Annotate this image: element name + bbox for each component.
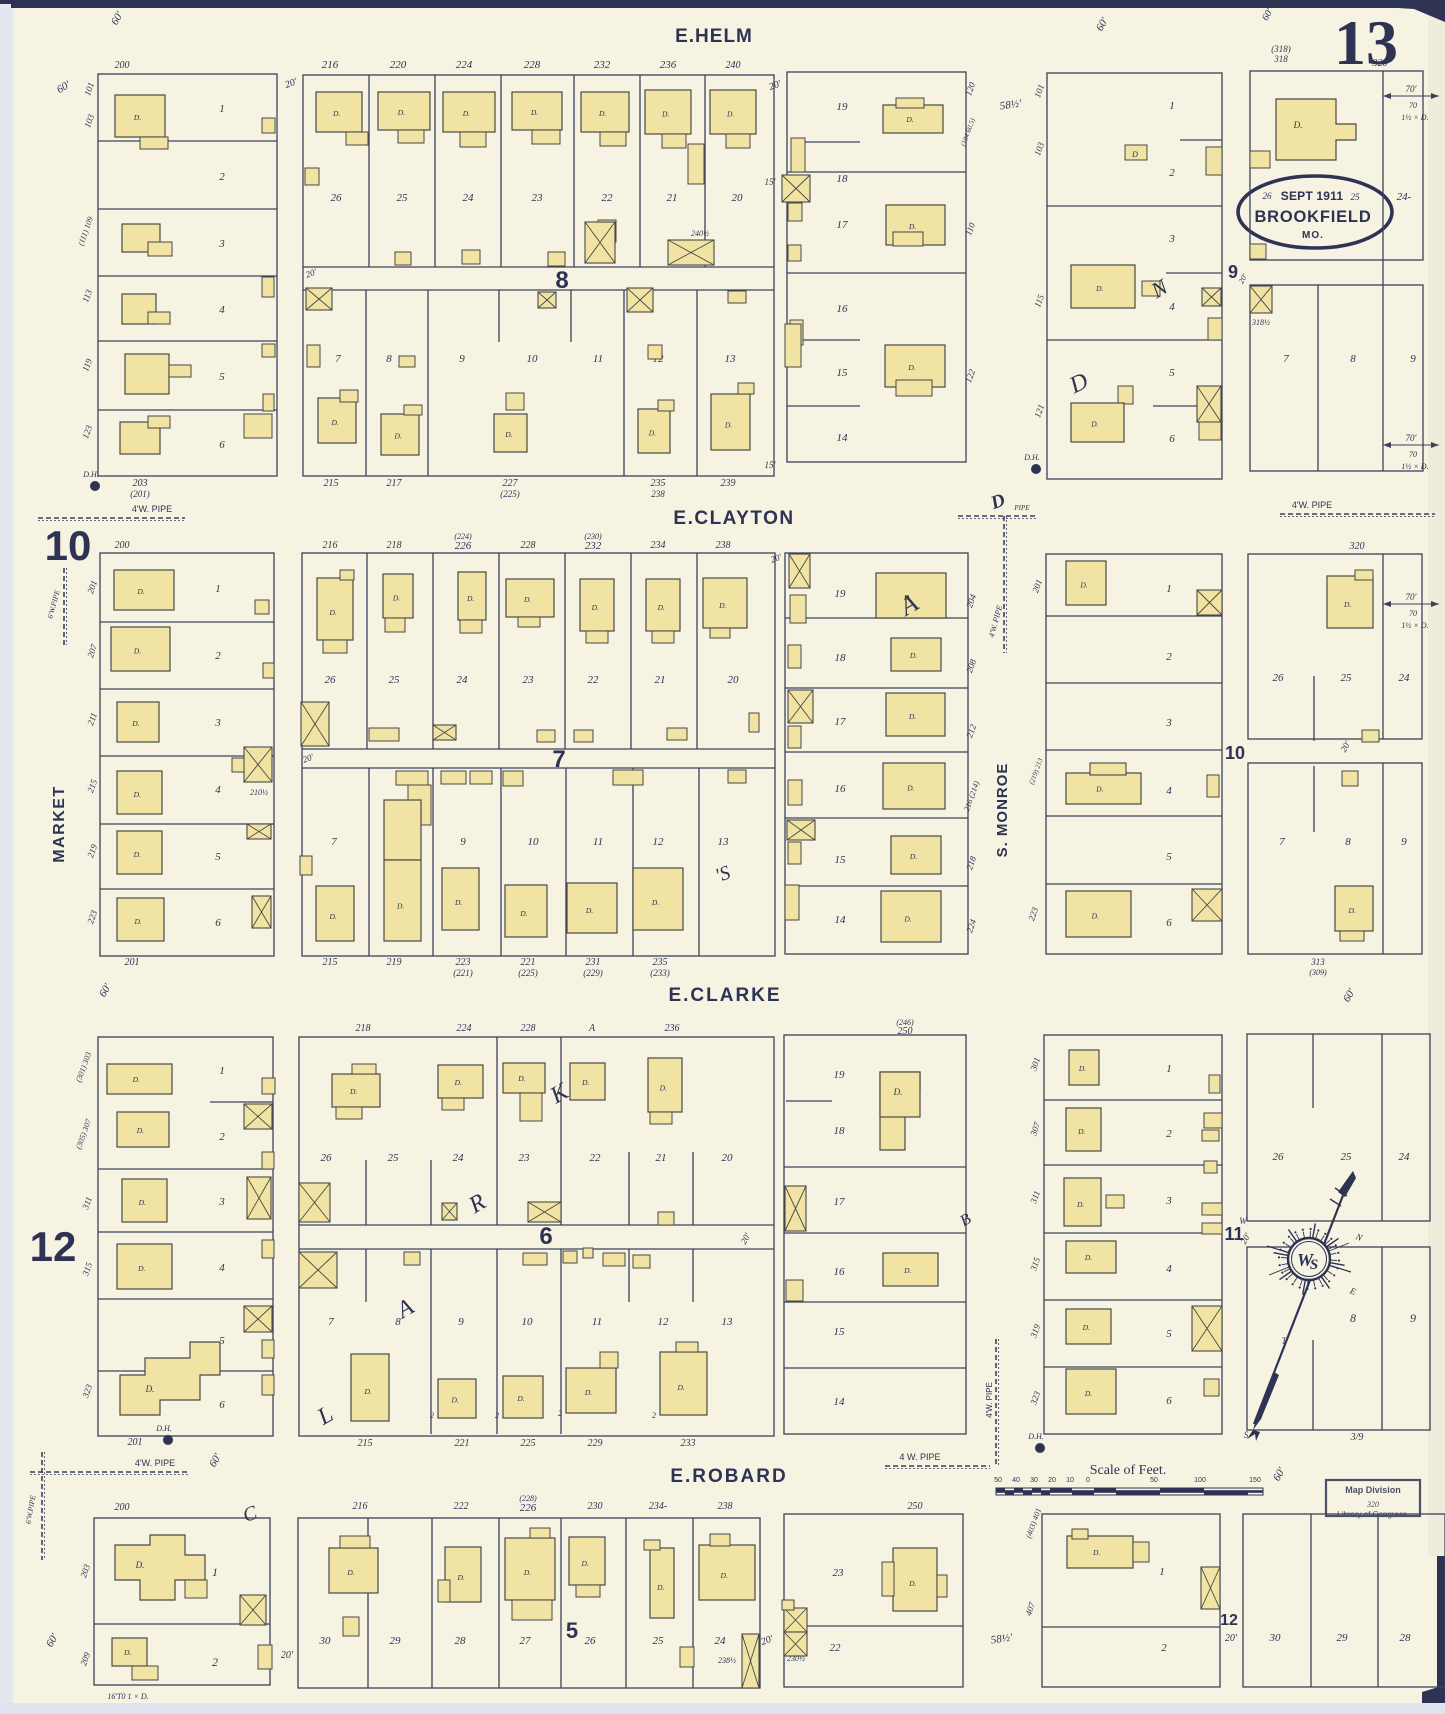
svg-text:5: 5 bbox=[1166, 851, 1172, 863]
svg-text:1: 1 bbox=[215, 583, 221, 595]
svg-text:(229): (229) bbox=[583, 968, 603, 978]
svg-text:7: 7 bbox=[335, 353, 341, 365]
svg-text:2: 2 bbox=[219, 1131, 225, 1143]
svg-text:D.: D. bbox=[530, 108, 538, 117]
svg-text:4: 4 bbox=[1166, 1263, 1172, 1275]
svg-text:23: 23 bbox=[532, 192, 544, 204]
svg-text:D.: D. bbox=[585, 906, 593, 915]
svg-text:2: 2 bbox=[215, 650, 221, 662]
svg-text:24-: 24- bbox=[1397, 191, 1412, 203]
svg-text:1: 1 bbox=[1169, 100, 1175, 112]
svg-text:17: 17 bbox=[835, 716, 847, 728]
svg-text:9: 9 bbox=[1401, 836, 1407, 848]
svg-text:30: 30 bbox=[1030, 1477, 1038, 1484]
svg-text:1½ × D.: 1½ × D. bbox=[1401, 621, 1428, 630]
svg-text:238: 238 bbox=[718, 1501, 733, 1512]
svg-text:9: 9 bbox=[460, 836, 466, 848]
svg-text:8: 8 bbox=[1350, 1311, 1356, 1325]
svg-text:20': 20' bbox=[281, 1650, 294, 1661]
svg-text:219: 219 bbox=[387, 957, 402, 968]
svg-text:17: 17 bbox=[834, 1196, 846, 1208]
svg-text:24: 24 bbox=[715, 1635, 727, 1647]
svg-text:13: 13 bbox=[1334, 7, 1398, 78]
svg-text:2: 2 bbox=[430, 1411, 434, 1420]
svg-text:10: 10 bbox=[45, 522, 92, 569]
svg-text:E.CLAYTON: E.CLAYTON bbox=[673, 508, 794, 529]
svg-text:25: 25 bbox=[1341, 672, 1353, 684]
svg-text:Scale of Feet.: Scale of Feet. bbox=[1090, 1463, 1167, 1478]
svg-text:D.: D. bbox=[523, 1568, 531, 1577]
svg-text:E.HELM: E.HELM bbox=[675, 26, 753, 47]
svg-text:20: 20 bbox=[728, 674, 740, 686]
svg-text:D.: D. bbox=[657, 603, 665, 612]
svg-text:(318): (318) bbox=[1271, 44, 1291, 54]
svg-text:25: 25 bbox=[388, 1152, 400, 1164]
svg-text:216: 216 bbox=[323, 540, 338, 551]
svg-text:(225): (225) bbox=[500, 489, 520, 499]
svg-text:320: 320 bbox=[1366, 1500, 1379, 1509]
svg-text:14: 14 bbox=[834, 1396, 846, 1408]
svg-text:8: 8 bbox=[555, 267, 568, 294]
svg-text:320: 320 bbox=[1349, 541, 1365, 552]
svg-text:70: 70 bbox=[1409, 101, 1417, 110]
svg-text:1: 1 bbox=[1166, 1063, 1172, 1075]
svg-text:25: 25 bbox=[1341, 1151, 1353, 1163]
svg-text:4: 4 bbox=[1166, 785, 1172, 797]
svg-text:216: 216 bbox=[322, 59, 339, 71]
svg-text:(225): (225) bbox=[518, 968, 538, 978]
svg-text:13: 13 bbox=[725, 353, 737, 365]
svg-text:14: 14 bbox=[835, 914, 847, 926]
svg-text:9: 9 bbox=[1410, 1311, 1416, 1325]
svg-text:5: 5 bbox=[1166, 1328, 1172, 1340]
svg-text:200: 200 bbox=[115, 1502, 130, 1513]
svg-text:70': 70' bbox=[1406, 84, 1418, 94]
svg-text:S: S bbox=[1244, 1430, 1249, 1440]
svg-text:(221): (221) bbox=[453, 968, 473, 978]
svg-text:D.: D. bbox=[396, 902, 404, 911]
svg-text:238½: 238½ bbox=[718, 1656, 736, 1665]
svg-text:234: 234 bbox=[651, 540, 666, 551]
svg-text:228: 228 bbox=[521, 540, 536, 551]
svg-text:6: 6 bbox=[215, 917, 221, 929]
svg-text:D.: D. bbox=[1084, 1389, 1092, 1398]
svg-text:2: 2 bbox=[652, 1411, 656, 1420]
svg-text:D.: D. bbox=[134, 917, 142, 926]
svg-text:25: 25 bbox=[653, 1635, 665, 1647]
svg-text:D.: D. bbox=[584, 1388, 592, 1397]
svg-text:D.: D. bbox=[136, 1126, 144, 1135]
svg-text:21: 21 bbox=[655, 674, 666, 686]
svg-text:15: 15 bbox=[835, 854, 847, 866]
svg-text:18: 18 bbox=[835, 652, 847, 664]
svg-text:235: 235 bbox=[653, 957, 668, 968]
svg-text:D.H.: D.H. bbox=[155, 1424, 172, 1433]
svg-text:D.: D. bbox=[450, 1395, 458, 1404]
svg-text:222: 222 bbox=[454, 1501, 469, 1512]
svg-text:40: 40 bbox=[1012, 1477, 1020, 1484]
svg-text:21: 21 bbox=[667, 192, 678, 204]
svg-text:29: 29 bbox=[390, 1635, 402, 1647]
svg-text:27: 27 bbox=[520, 1635, 532, 1647]
svg-text:15': 15' bbox=[765, 177, 777, 187]
svg-text:318½: 318½ bbox=[1251, 318, 1270, 327]
svg-text:E.ROBARD: E.ROBARD bbox=[670, 1466, 787, 1487]
svg-text:D.: D. bbox=[346, 1568, 354, 1577]
svg-text:D.: D. bbox=[349, 1087, 357, 1096]
svg-text:4 W. PIPE: 4 W. PIPE bbox=[899, 1452, 940, 1462]
svg-text:232: 232 bbox=[585, 540, 602, 552]
svg-text:17: 17 bbox=[837, 219, 849, 231]
svg-text:70': 70' bbox=[1406, 592, 1418, 602]
svg-text:26: 26 bbox=[331, 192, 343, 204]
svg-text:8: 8 bbox=[386, 353, 392, 365]
svg-text:D.: D. bbox=[1347, 906, 1355, 915]
svg-text:23: 23 bbox=[833, 1567, 845, 1579]
svg-text:D.: D. bbox=[133, 113, 141, 122]
svg-text:D.: D. bbox=[906, 784, 914, 793]
svg-text:20: 20 bbox=[722, 1152, 734, 1164]
svg-text:20: 20 bbox=[732, 192, 744, 204]
svg-text:D.: D. bbox=[661, 109, 669, 118]
svg-text:201: 201 bbox=[128, 1437, 143, 1448]
svg-text:D.: D. bbox=[908, 1579, 916, 1588]
svg-text:12: 12 bbox=[30, 1223, 77, 1270]
svg-text:11: 11 bbox=[593, 836, 603, 848]
svg-text:12: 12 bbox=[653, 836, 665, 848]
svg-text:26: 26 bbox=[1273, 1151, 1285, 1163]
svg-text:7: 7 bbox=[331, 836, 337, 848]
svg-text:D.: D. bbox=[581, 1078, 589, 1087]
svg-text:22: 22 bbox=[830, 1642, 842, 1654]
svg-text:D.: D. bbox=[145, 1384, 155, 1394]
svg-text:22: 22 bbox=[602, 192, 614, 204]
svg-text:D.: D. bbox=[466, 594, 474, 603]
svg-text:3: 3 bbox=[1165, 1195, 1172, 1207]
svg-text:D.: D. bbox=[457, 1573, 465, 1582]
svg-text:S. MONROE: S. MONROE bbox=[994, 763, 1011, 858]
svg-text:D.: D. bbox=[138, 1198, 146, 1207]
svg-text:20': 20' bbox=[1225, 1633, 1238, 1644]
svg-text:D.: D. bbox=[136, 587, 144, 596]
svg-text:6: 6 bbox=[1166, 1395, 1172, 1407]
svg-text:14: 14 bbox=[837, 432, 849, 444]
svg-text:D.: D. bbox=[893, 1087, 903, 1097]
svg-text:D.: D. bbox=[1091, 912, 1099, 921]
svg-text:D.: D. bbox=[591, 603, 599, 612]
svg-text:3: 3 bbox=[218, 238, 225, 250]
svg-text:D.: D. bbox=[131, 719, 139, 728]
svg-text:224: 224 bbox=[456, 59, 473, 71]
svg-text:9: 9 bbox=[458, 1316, 464, 1328]
svg-text:15: 15 bbox=[837, 367, 849, 379]
svg-text:S: S bbox=[1310, 1257, 1318, 1273]
svg-text:D.: D. bbox=[908, 222, 916, 231]
svg-text:D.: D. bbox=[397, 108, 405, 117]
svg-text:D.: D. bbox=[393, 432, 401, 441]
svg-text:3: 3 bbox=[218, 1196, 225, 1208]
svg-text:218: 218 bbox=[387, 540, 402, 551]
svg-text:D.: D. bbox=[903, 915, 911, 924]
svg-text:D.: D. bbox=[905, 115, 913, 124]
svg-text:6: 6 bbox=[219, 439, 225, 451]
svg-text:24: 24 bbox=[1399, 672, 1411, 684]
svg-text:236: 236 bbox=[665, 1023, 680, 1034]
svg-text:5: 5 bbox=[566, 1618, 578, 1643]
svg-text:10: 10 bbox=[522, 1316, 534, 1328]
svg-text:26: 26 bbox=[325, 674, 337, 686]
svg-text:2: 2 bbox=[1166, 651, 1172, 663]
svg-text:50: 50 bbox=[1150, 1477, 1158, 1484]
svg-text:A: A bbox=[588, 1023, 596, 1034]
svg-text:226: 226 bbox=[455, 540, 472, 552]
svg-text:230: 230 bbox=[588, 1501, 603, 1512]
svg-text:318: 318 bbox=[1273, 54, 1288, 64]
svg-text:D.H.: D.H. bbox=[1023, 453, 1040, 462]
svg-text:D.: D. bbox=[454, 1078, 462, 1087]
svg-text:26: 26 bbox=[1263, 191, 1273, 201]
svg-text:229: 229 bbox=[588, 1438, 603, 1449]
svg-text:0: 0 bbox=[1086, 1477, 1090, 1484]
svg-text:225: 225 bbox=[521, 1438, 536, 1449]
svg-text:24: 24 bbox=[463, 192, 475, 204]
svg-text:25: 25 bbox=[1351, 192, 1361, 202]
svg-text:215: 215 bbox=[358, 1438, 373, 1449]
svg-text:28: 28 bbox=[455, 1635, 467, 1647]
svg-text:3: 3 bbox=[214, 717, 221, 729]
svg-text:233: 233 bbox=[681, 1438, 696, 1449]
svg-text:D.: D. bbox=[330, 418, 338, 427]
svg-text:7: 7 bbox=[1279, 836, 1285, 848]
svg-text:18: 18 bbox=[834, 1125, 846, 1137]
svg-text:(246): (246) bbox=[896, 1018, 914, 1027]
svg-text:218: 218 bbox=[356, 1023, 371, 1034]
svg-text:200: 200 bbox=[115, 60, 130, 71]
svg-text:D.: D. bbox=[133, 790, 141, 799]
svg-text:(233): (233) bbox=[650, 968, 670, 978]
svg-text:200: 200 bbox=[115, 540, 130, 551]
svg-text:SEPT 1911: SEPT 1911 bbox=[1281, 189, 1344, 203]
svg-text:4'W. PIPE: 4'W. PIPE bbox=[135, 1458, 175, 1468]
svg-text:1½ × D.: 1½ × D. bbox=[1401, 113, 1428, 122]
svg-text:2: 2 bbox=[1169, 167, 1175, 179]
svg-text:16: 16 bbox=[837, 303, 849, 315]
svg-text:4: 4 bbox=[219, 1262, 225, 1274]
svg-text:D.: D. bbox=[659, 1083, 667, 1092]
svg-text:12: 12 bbox=[1220, 1612, 1238, 1629]
svg-text:23: 23 bbox=[519, 1152, 531, 1164]
svg-text:D.: D. bbox=[1082, 1323, 1090, 1332]
svg-text:7: 7 bbox=[552, 746, 565, 773]
svg-text:217: 217 bbox=[387, 478, 403, 489]
svg-text:7: 7 bbox=[1283, 353, 1289, 365]
svg-text:228: 228 bbox=[524, 59, 541, 71]
svg-text:5: 5 bbox=[1169, 367, 1175, 379]
svg-text:20: 20 bbox=[1048, 1477, 1056, 1484]
svg-text:5: 5 bbox=[215, 851, 221, 863]
svg-text:11: 11 bbox=[593, 353, 603, 365]
svg-text:238: 238 bbox=[651, 489, 665, 499]
svg-text:D.: D. bbox=[329, 608, 337, 617]
svg-text:100: 100 bbox=[1194, 1477, 1206, 1484]
svg-text:15': 15' bbox=[765, 460, 777, 470]
svg-text:BROOKFIELD: BROOKFIELD bbox=[1254, 208, 1371, 226]
svg-text:224: 224 bbox=[457, 1023, 472, 1034]
svg-text:3: 3 bbox=[1165, 717, 1172, 729]
svg-text:D.: D. bbox=[392, 593, 400, 602]
svg-text:(201): (201) bbox=[130, 489, 150, 499]
svg-text:22: 22 bbox=[590, 1152, 602, 1164]
svg-text:D: D bbox=[1131, 150, 1138, 159]
svg-text:D.: D. bbox=[137, 1264, 145, 1273]
svg-text:2: 2 bbox=[212, 1655, 218, 1669]
svg-text:D.: D. bbox=[598, 109, 606, 118]
svg-text:D.: D. bbox=[909, 651, 917, 660]
svg-text:201: 201 bbox=[125, 957, 140, 968]
svg-text:D.: D. bbox=[651, 898, 659, 907]
svg-text:19: 19 bbox=[835, 588, 847, 600]
svg-text:70': 70' bbox=[1406, 433, 1418, 443]
svg-text:D.: D. bbox=[135, 1560, 145, 1570]
svg-text:19: 19 bbox=[834, 1069, 846, 1081]
svg-text:D.: D. bbox=[726, 109, 734, 118]
svg-text:30: 30 bbox=[1269, 1632, 1282, 1644]
svg-text:70: 70 bbox=[1409, 609, 1417, 618]
svg-text:24: 24 bbox=[453, 1152, 465, 1164]
svg-text:D.: D. bbox=[720, 1571, 728, 1580]
svg-text:D.: D. bbox=[1095, 284, 1103, 293]
svg-text:232: 232 bbox=[594, 59, 611, 71]
svg-text:D.: D. bbox=[519, 909, 527, 918]
svg-text:238: 238 bbox=[716, 540, 731, 551]
svg-text:D.: D. bbox=[132, 1075, 140, 1084]
svg-text:(309): (309) bbox=[1309, 968, 1327, 977]
svg-text:4: 4 bbox=[215, 784, 221, 796]
svg-text:10: 10 bbox=[1066, 1477, 1074, 1484]
svg-text:9: 9 bbox=[459, 353, 465, 365]
svg-text:6: 6 bbox=[1166, 917, 1172, 929]
svg-text:2: 2 bbox=[558, 1409, 562, 1418]
svg-text:MO.: MO. bbox=[1302, 230, 1324, 241]
svg-text:21: 21 bbox=[656, 1152, 667, 1164]
svg-text:D.: D. bbox=[328, 912, 336, 921]
svg-text:4: 4 bbox=[1169, 301, 1175, 313]
svg-text:25: 25 bbox=[397, 192, 409, 204]
svg-text:D.: D. bbox=[909, 852, 917, 861]
svg-text:D.: D. bbox=[462, 109, 470, 118]
svg-text:10: 10 bbox=[1225, 743, 1245, 763]
svg-text:D.: D. bbox=[133, 850, 141, 859]
svg-text:6: 6 bbox=[219, 1399, 225, 1411]
svg-text:D.: D. bbox=[1084, 1253, 1092, 1262]
svg-text:D.: D. bbox=[523, 595, 531, 604]
svg-text:D.: D. bbox=[1078, 1064, 1086, 1073]
svg-text:D.: D. bbox=[903, 1266, 911, 1275]
svg-text:D.: D. bbox=[516, 1394, 524, 1403]
svg-text:234-: 234- bbox=[649, 1501, 667, 1512]
svg-text:D.: D. bbox=[1076, 1200, 1084, 1209]
svg-text:320: 320 bbox=[1372, 58, 1388, 69]
svg-text:240: 240 bbox=[726, 60, 741, 71]
svg-text:D.: D. bbox=[1079, 580, 1087, 589]
svg-text:220: 220 bbox=[390, 59, 407, 71]
svg-text:D.: D. bbox=[907, 363, 915, 372]
svg-text:28: 28 bbox=[1400, 1632, 1412, 1644]
svg-text:23: 23 bbox=[523, 674, 535, 686]
svg-text:D.: D. bbox=[1095, 785, 1103, 794]
svg-text:D.: D. bbox=[581, 1559, 589, 1568]
svg-text:MARKET: MARKET bbox=[51, 785, 68, 862]
svg-text:12: 12 bbox=[658, 1316, 670, 1328]
svg-text:313: 313 bbox=[1310, 957, 1325, 967]
svg-text:D.: D. bbox=[1293, 120, 1303, 130]
svg-text:22: 22 bbox=[588, 674, 600, 686]
svg-text:1: 1 bbox=[219, 1065, 225, 1077]
svg-text:223: 223 bbox=[456, 957, 471, 968]
svg-text:D.: D. bbox=[724, 421, 732, 430]
svg-text:2: 2 bbox=[1166, 1128, 1172, 1140]
svg-text:PIPE: PIPE bbox=[1013, 504, 1030, 512]
svg-text:D.: D. bbox=[363, 1387, 371, 1396]
svg-text:4: 4 bbox=[219, 304, 225, 316]
svg-text:D.: D. bbox=[1077, 1127, 1085, 1136]
svg-text:70: 70 bbox=[1409, 450, 1417, 459]
svg-text:D.: D. bbox=[123, 1648, 131, 1657]
svg-text:30: 30 bbox=[319, 1635, 332, 1647]
svg-text:D.: D. bbox=[677, 1383, 685, 1392]
svg-text:7: 7 bbox=[328, 1316, 334, 1328]
svg-text:50: 50 bbox=[994, 1477, 1002, 1484]
svg-text:221: 221 bbox=[455, 1438, 470, 1449]
svg-text:29: 29 bbox=[1337, 1632, 1349, 1644]
svg-text:8: 8 bbox=[1345, 836, 1351, 848]
svg-text:210½: 210½ bbox=[250, 788, 268, 797]
svg-text:226: 226 bbox=[520, 1502, 537, 1514]
svg-text:10: 10 bbox=[527, 353, 539, 365]
svg-text:1: 1 bbox=[1159, 1566, 1165, 1578]
svg-text:235: 235 bbox=[651, 478, 666, 489]
svg-text:D.: D. bbox=[908, 712, 916, 721]
svg-text:25: 25 bbox=[389, 674, 401, 686]
svg-text:4'W. PIPE: 4'W. PIPE bbox=[985, 1382, 994, 1418]
svg-text:3: 3 bbox=[1168, 233, 1175, 245]
svg-text:231: 231 bbox=[586, 957, 601, 968]
svg-text:15: 15 bbox=[834, 1326, 846, 1338]
svg-text:228: 228 bbox=[521, 1023, 536, 1034]
svg-text:D.: D. bbox=[1092, 1548, 1100, 1557]
svg-text:D.: D. bbox=[332, 109, 340, 118]
svg-text:Map Division: Map Division bbox=[1345, 1485, 1401, 1495]
svg-text:2: 2 bbox=[219, 171, 225, 183]
svg-text:D.: D. bbox=[718, 601, 726, 610]
svg-text:10: 10 bbox=[528, 836, 540, 848]
svg-text:D.: D. bbox=[517, 1074, 525, 1083]
svg-text:1: 1 bbox=[1166, 583, 1172, 595]
svg-text:D.: D. bbox=[656, 1583, 664, 1592]
svg-text:239: 239 bbox=[721, 478, 736, 489]
svg-text:11: 11 bbox=[592, 1316, 602, 1328]
svg-text:1: 1 bbox=[219, 103, 225, 115]
svg-text:26: 26 bbox=[321, 1152, 333, 1164]
svg-text:D.: D. bbox=[454, 898, 462, 907]
svg-text:2: 2 bbox=[495, 1411, 499, 1420]
svg-text:13: 13 bbox=[722, 1316, 734, 1328]
svg-text:5: 5 bbox=[219, 371, 225, 383]
svg-text:240½: 240½ bbox=[691, 229, 709, 238]
svg-text:250: 250 bbox=[908, 1501, 923, 1512]
svg-text:D.: D. bbox=[1090, 419, 1098, 428]
svg-text:26: 26 bbox=[1273, 672, 1285, 684]
